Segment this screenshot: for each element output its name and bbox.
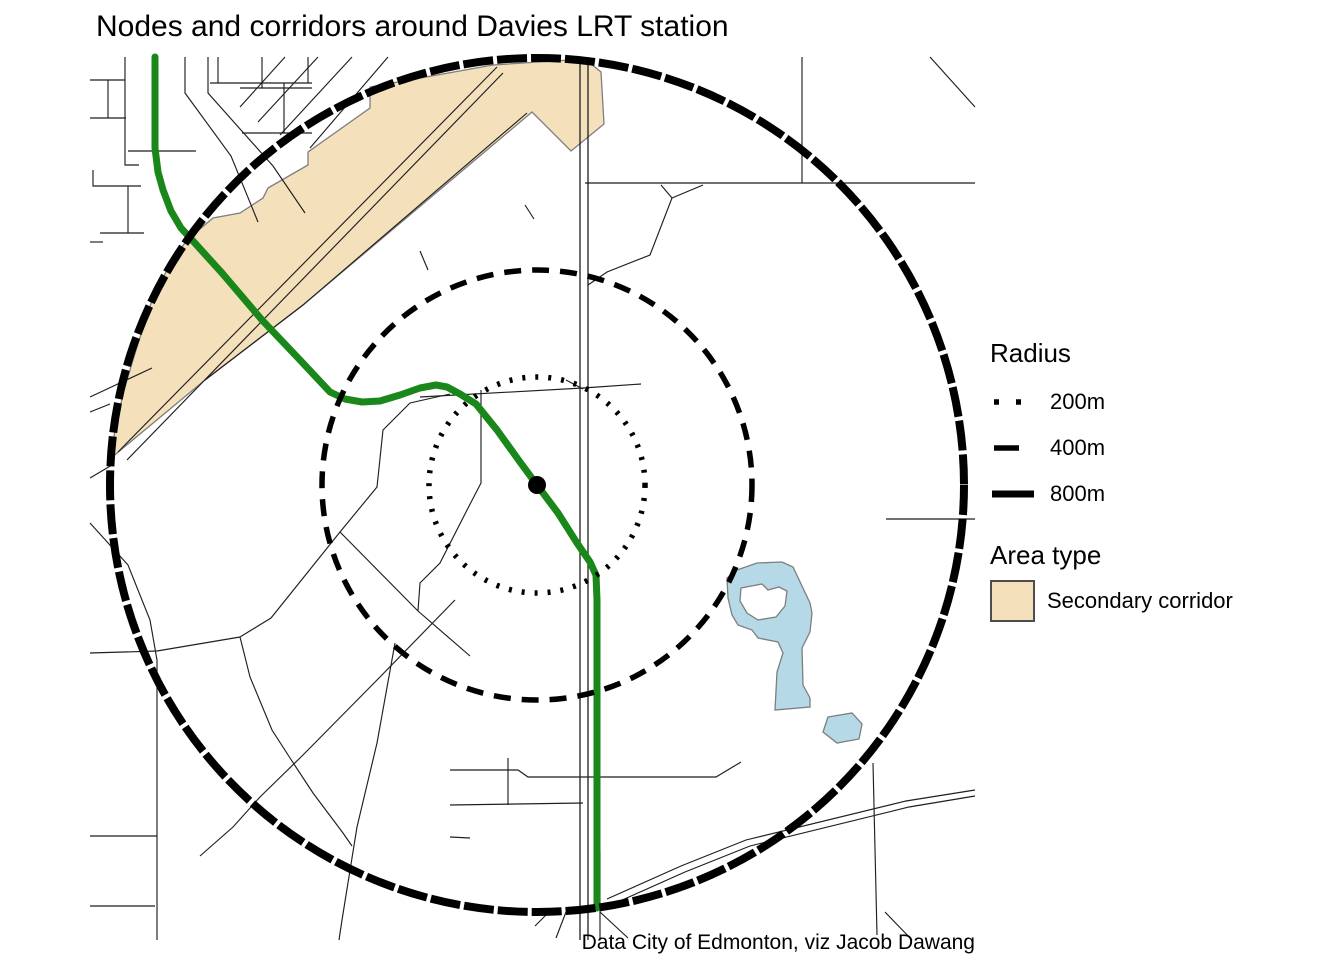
legend-label-secondary-corridor: Secondary corridor bbox=[1047, 588, 1233, 614]
legend-area-type-title: Area type bbox=[990, 540, 1101, 571]
area-type-swatch bbox=[990, 580, 1035, 622]
dotted-line-key-icon bbox=[990, 391, 1038, 413]
road-line bbox=[420, 251, 428, 270]
legend-radius-title: Radius bbox=[990, 338, 1071, 369]
legend-item-secondary-corridor: Secondary corridor bbox=[990, 580, 1233, 622]
water-polygon bbox=[823, 713, 862, 743]
road-line bbox=[258, 57, 318, 122]
legend-label-800m: 800m bbox=[1050, 481, 1105, 507]
legend: Radius 200m 400m 800m Area type Secondar… bbox=[990, 338, 1320, 638]
road-line bbox=[672, 185, 703, 198]
legend-label-400m: 400m bbox=[1050, 435, 1105, 461]
legend-label-200m: 200m bbox=[1050, 389, 1105, 415]
road-line bbox=[93, 170, 141, 186]
legend-item-800m: 800m bbox=[990, 482, 1105, 506]
road-line bbox=[556, 912, 566, 938]
road-line bbox=[450, 837, 470, 838]
station-point bbox=[528, 476, 546, 494]
road-line bbox=[873, 763, 877, 935]
road-line bbox=[90, 637, 240, 653]
caption: Data City of Edmonton, viz Jacob Dawang bbox=[582, 931, 975, 955]
road-line bbox=[930, 57, 975, 107]
legend-item-400m: 400m bbox=[990, 436, 1105, 460]
solid-line-key-icon bbox=[990, 483, 1038, 505]
road-line bbox=[588, 185, 672, 285]
road-line bbox=[125, 57, 139, 165]
road-line bbox=[525, 205, 534, 219]
water-polygon bbox=[727, 562, 812, 710]
figure: Nodes and corridors around Davies LRT st… bbox=[0, 0, 1344, 960]
dashed-line-key-icon bbox=[990, 437, 1038, 459]
road-line bbox=[240, 394, 450, 846]
road-line bbox=[339, 643, 395, 940]
road-line bbox=[90, 404, 110, 412]
legend-item-200m: 200m bbox=[990, 390, 1105, 414]
road-line bbox=[200, 600, 455, 856]
road-line bbox=[450, 803, 583, 805]
road-line bbox=[340, 532, 470, 656]
figure-title: Nodes and corridors around Davies LRT st… bbox=[96, 10, 729, 44]
